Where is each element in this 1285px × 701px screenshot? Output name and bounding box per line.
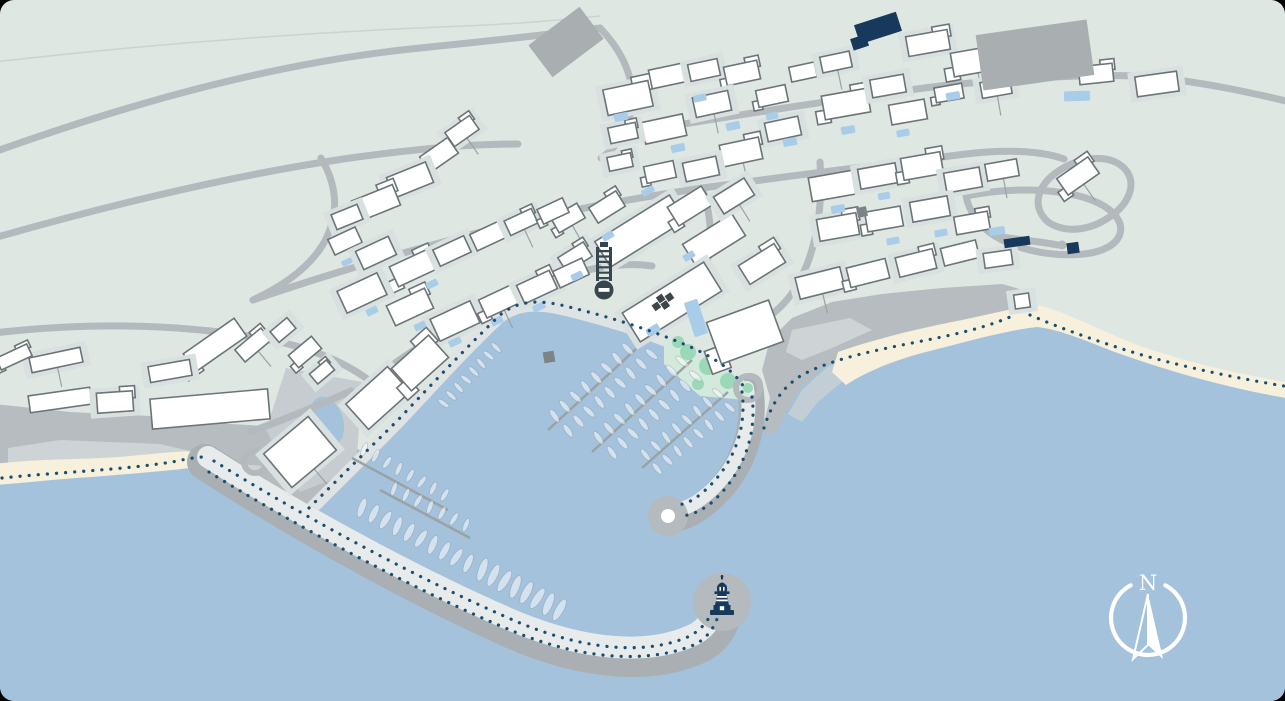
- utility-structure: [543, 351, 556, 364]
- swimming-pool: [1064, 91, 1090, 102]
- road-end: [1058, 241, 1067, 250]
- highlighted-building-footprint: [1066, 242, 1079, 255]
- breakwater-head-platform: [661, 509, 675, 523]
- highlighted-building: [1066, 242, 1079, 255]
- building-footprint: [983, 250, 1013, 269]
- roundabout-green: [743, 383, 753, 393]
- tree: [680, 344, 696, 360]
- map-window: N: [0, 0, 1285, 701]
- building-footprint: [1014, 293, 1031, 309]
- building: [1006, 287, 1038, 315]
- building: [89, 385, 141, 418]
- tree: [672, 336, 684, 348]
- utility-structure: [856, 206, 868, 218]
- building-footprint: [96, 391, 133, 413]
- north-label: N: [1139, 571, 1157, 595]
- marina-resort-map: N: [0, 0, 1285, 701]
